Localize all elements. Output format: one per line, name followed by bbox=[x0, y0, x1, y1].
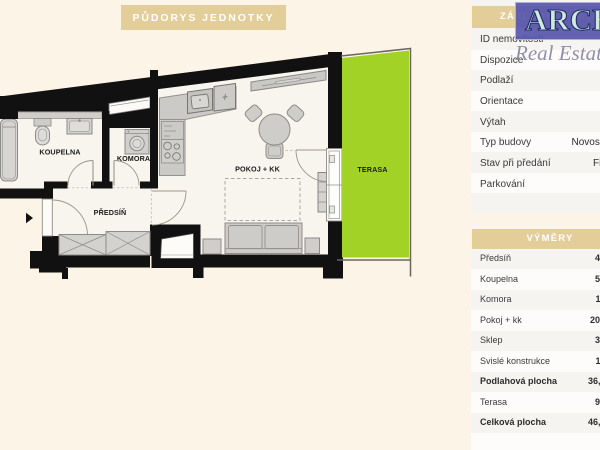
svg-text:POKOJ + KK: POKOJ + KK bbox=[235, 165, 280, 174]
svg-text:TERASA: TERASA bbox=[357, 165, 387, 174]
svg-text:PŘEDSÍŇ: PŘEDSÍŇ bbox=[94, 208, 127, 217]
svg-text:KOUPELNA: KOUPELNA bbox=[39, 148, 80, 157]
